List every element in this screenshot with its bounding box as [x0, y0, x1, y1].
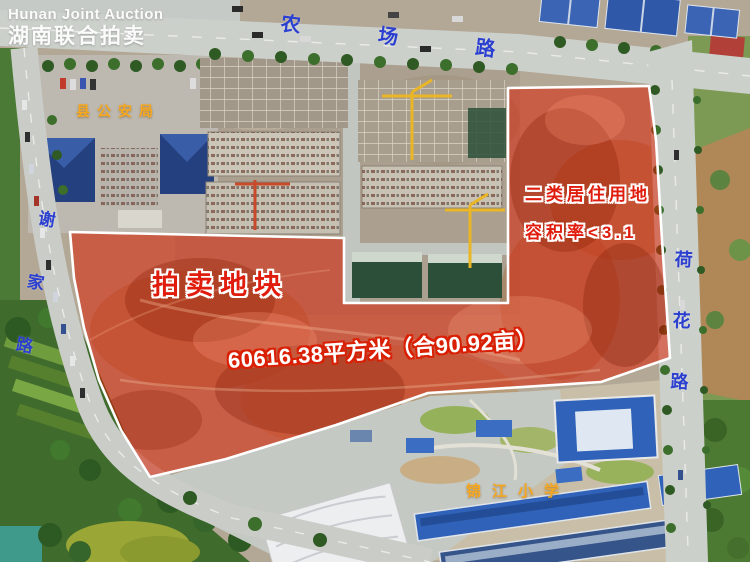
parcel-zoning-type: 二类居住用地	[525, 186, 651, 203]
watermark-cn: 湖南联合拍卖	[8, 26, 146, 47]
parcel-zoning-far: 容积率<3.1	[525, 224, 638, 241]
parcel-title: 拍卖地块	[152, 272, 288, 299]
watermark-en: Hunan Joint Auction	[8, 7, 164, 22]
police-station-block	[28, 55, 218, 233]
poi-label-police-bureau: 县公安局	[76, 104, 160, 118]
aerial-photo-scene	[0, 0, 750, 562]
poi-label-school: 锦江小学	[466, 484, 570, 499]
aerial-auction-map: Hunan Joint Auction 湖南联合拍卖 农场路 谢家路 荷花路 县…	[0, 0, 750, 562]
